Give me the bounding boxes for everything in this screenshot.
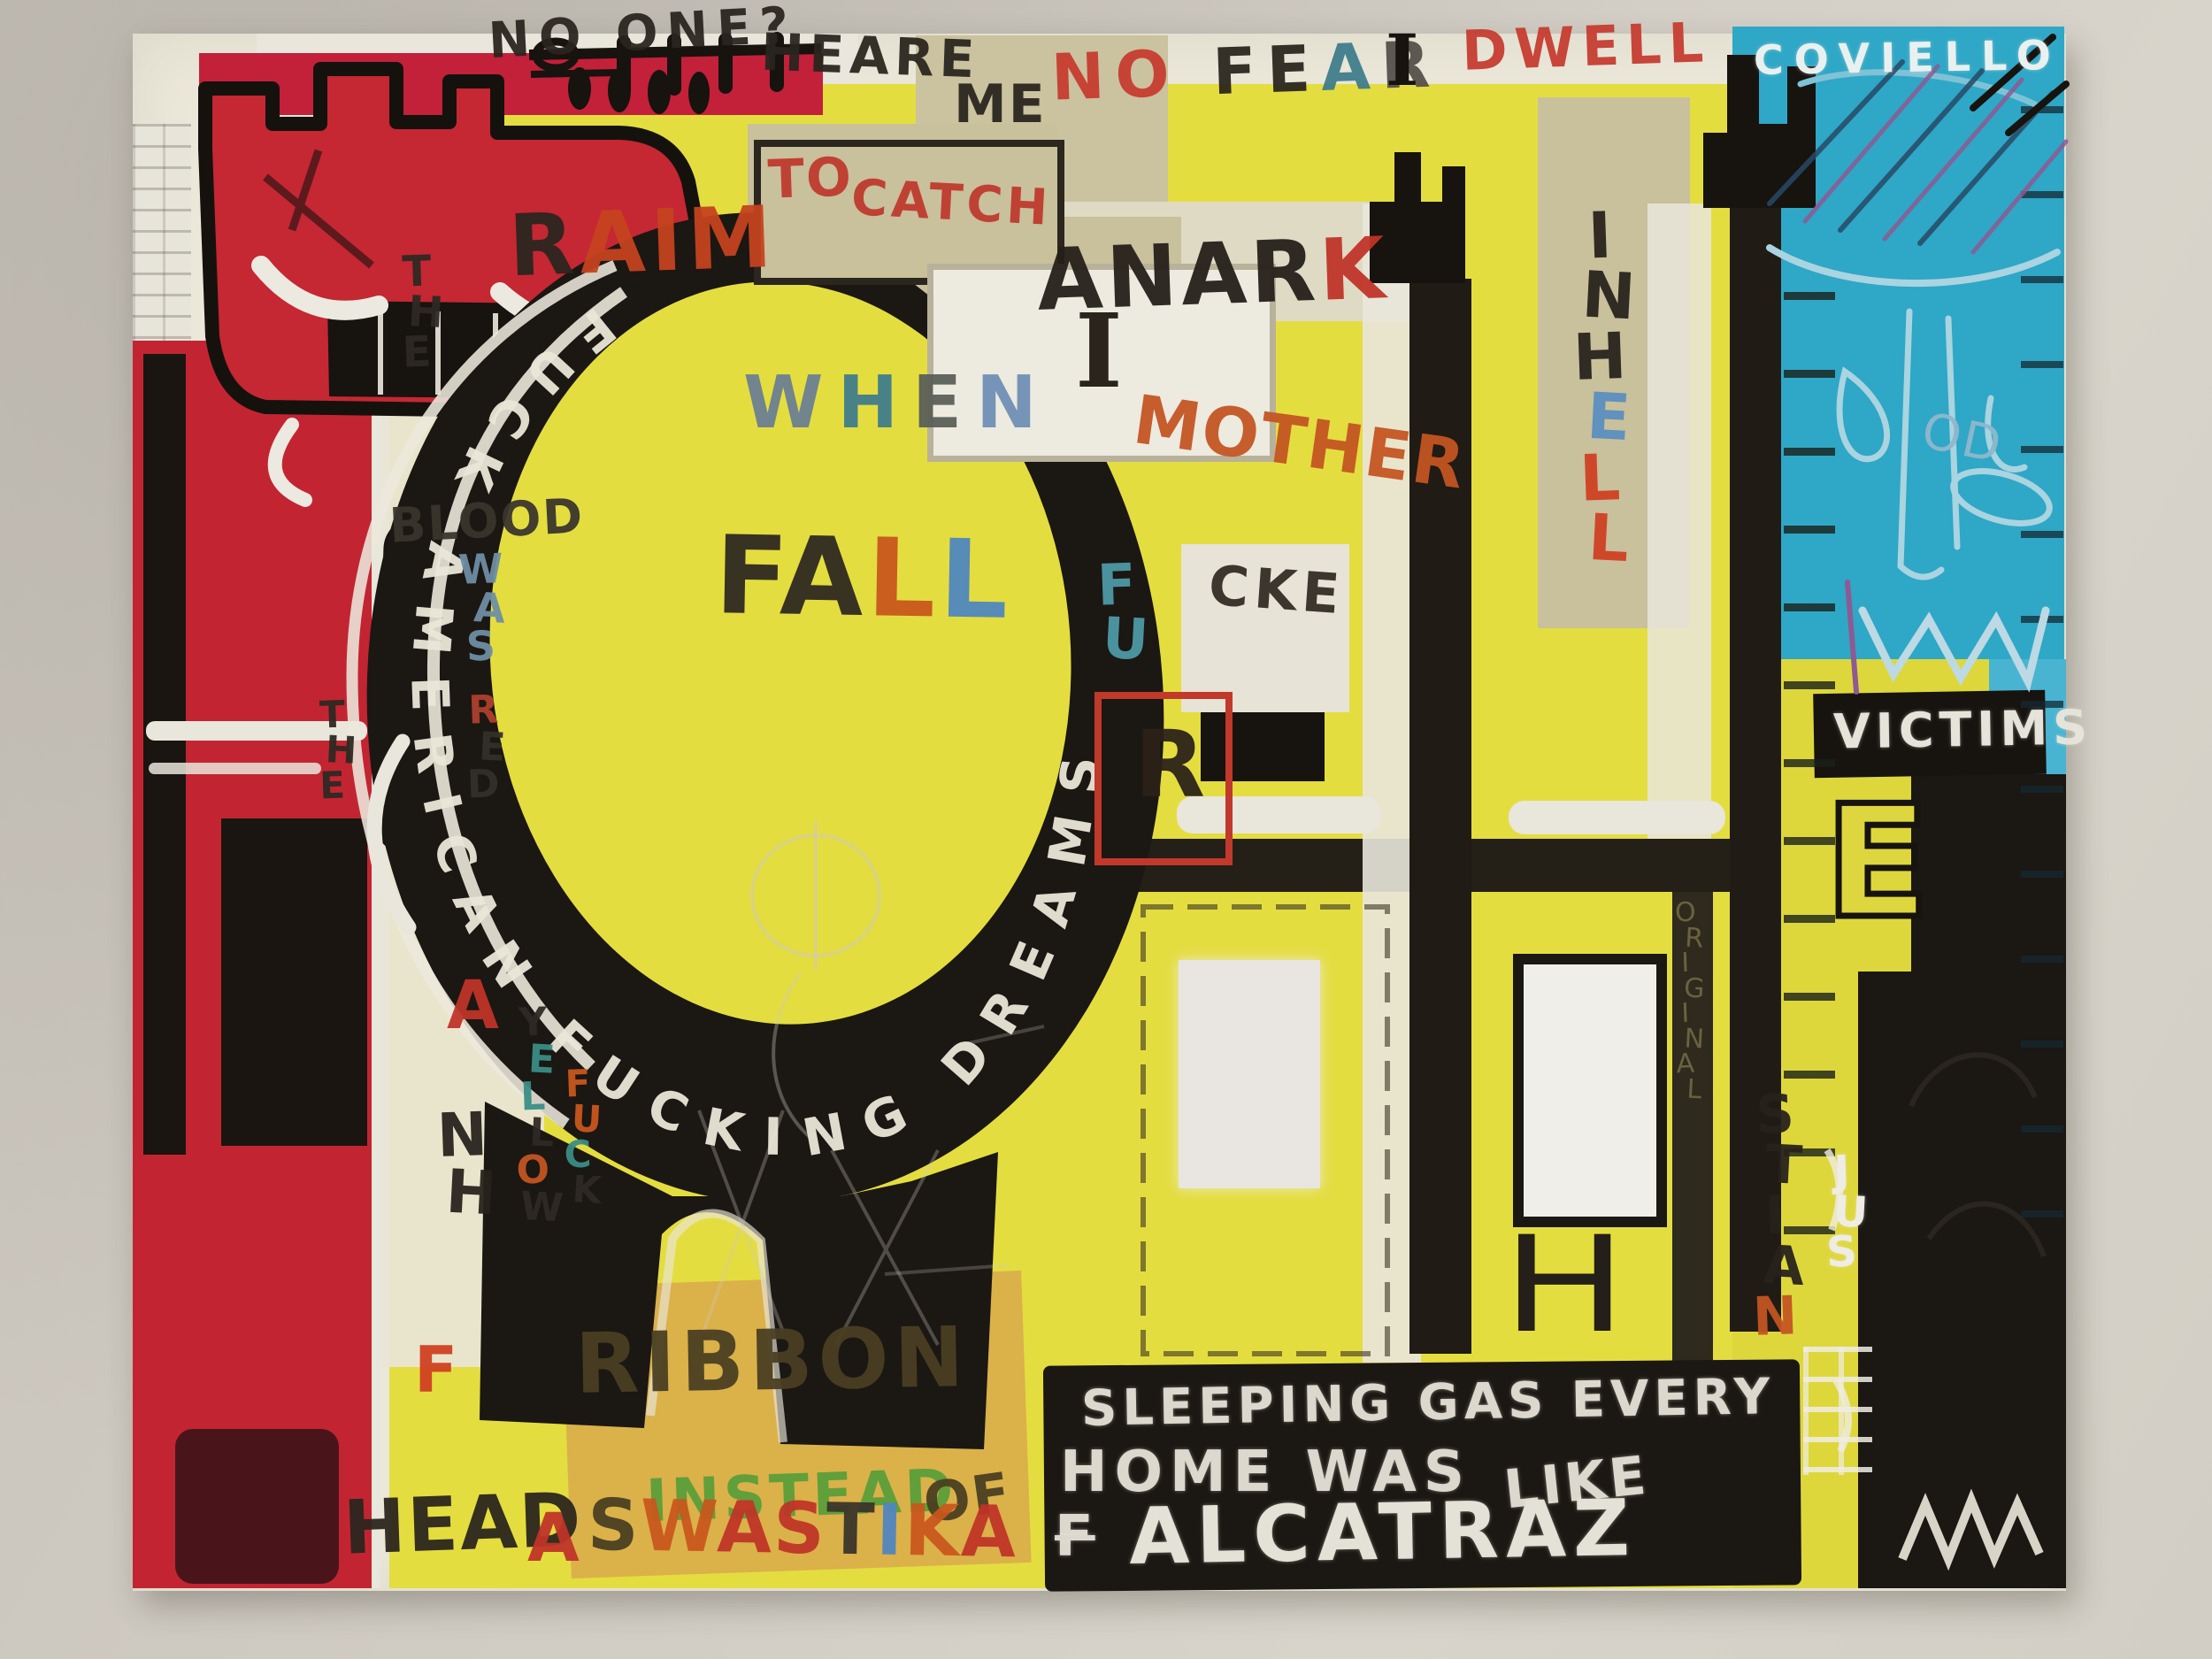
- word-when: WHEN: [743, 367, 1051, 440]
- red-column-black-block: [221, 818, 367, 1146]
- photo-of-painting: { "scene": { "description": "Photograph …: [0, 0, 2212, 1659]
- word-i-fall: I: [1075, 301, 1125, 403]
- panel-line-3-prefix: F: [1055, 1509, 1095, 1565]
- word-fu-vertical: FU: [1097, 559, 1143, 667]
- word-fall: FALL: [714, 521, 1012, 634]
- word-a-swastika: A: [527, 1504, 581, 1571]
- red-column-black-bar: [143, 354, 186, 1155]
- panel-line-1: SLEEPING GAS EVERY: [1081, 1372, 1776, 1434]
- word-fuck-vertical: FUCK: [566, 1066, 596, 1208]
- word-red-vertical: RED: [471, 692, 503, 803]
- word-original-vertical: ORIGINAL: [1678, 901, 1700, 1102]
- window-framed: [1513, 954, 1667, 1227]
- word-me: ME: [954, 78, 1047, 131]
- word-r-box: R: [1134, 718, 1207, 810]
- word-raim: RAIM: [507, 195, 779, 289]
- word-swastika: SWASTIKA: [587, 1490, 1018, 1568]
- letter-e-big: E: [1824, 786, 1932, 941]
- word-cke: CKE: [1207, 558, 1347, 623]
- word-stian-vertical: STIAN: [1756, 1090, 1801, 1342]
- white-streak-2: [1509, 801, 1725, 834]
- word-nh-vertical: NH: [441, 1108, 491, 1222]
- white-dash-red2: [149, 763, 321, 774]
- word-heare: HEARE: [760, 27, 980, 86]
- word-catch: CATCH: [850, 173, 1053, 234]
- panel-line-3-alcatraz: ALCATRAZ: [1128, 1489, 1637, 1576]
- word-to: TO: [767, 150, 854, 206]
- word-in-hell-vertical: INHELL: [1577, 205, 1630, 568]
- white-grid-marks: [1803, 1347, 1872, 1475]
- word-was-vertical: WAS: [462, 550, 507, 666]
- word-a-left: A: [447, 972, 501, 1039]
- white-strip-pole-b: [1647, 204, 1711, 839]
- word-no-fear: NO FEAR: [1050, 32, 1441, 109]
- word-victims: VICTIMS: [1833, 703, 2093, 756]
- word-coviello-signature: COVIELLO: [1754, 35, 2062, 81]
- word-the-vertical-1: THE: [403, 252, 438, 373]
- word-f-left: F: [414, 1338, 459, 1402]
- orange-tick-column: [625, 305, 636, 434]
- word-blood: BLOOD: [388, 492, 586, 549]
- ladder-dashes-blue-edge: [2021, 106, 2063, 1283]
- window-soft: [1179, 960, 1320, 1188]
- blue-column: [1732, 27, 2064, 659]
- word-ribbon: RIBBON: [574, 1317, 970, 1407]
- word-i-dwell-i: I: [1386, 25, 1420, 96]
- word-jus-vertical: JUS: [1828, 1152, 1863, 1273]
- word-yellow-vertical: YELLOW: [515, 1004, 558, 1226]
- word-dwell: DWELL: [1461, 15, 1711, 79]
- glyph-h-mark: H: [1502, 1219, 1629, 1352]
- red-column-bottom-shadow: [175, 1429, 339, 1584]
- word-the-vertical-2: THE: [320, 697, 351, 803]
